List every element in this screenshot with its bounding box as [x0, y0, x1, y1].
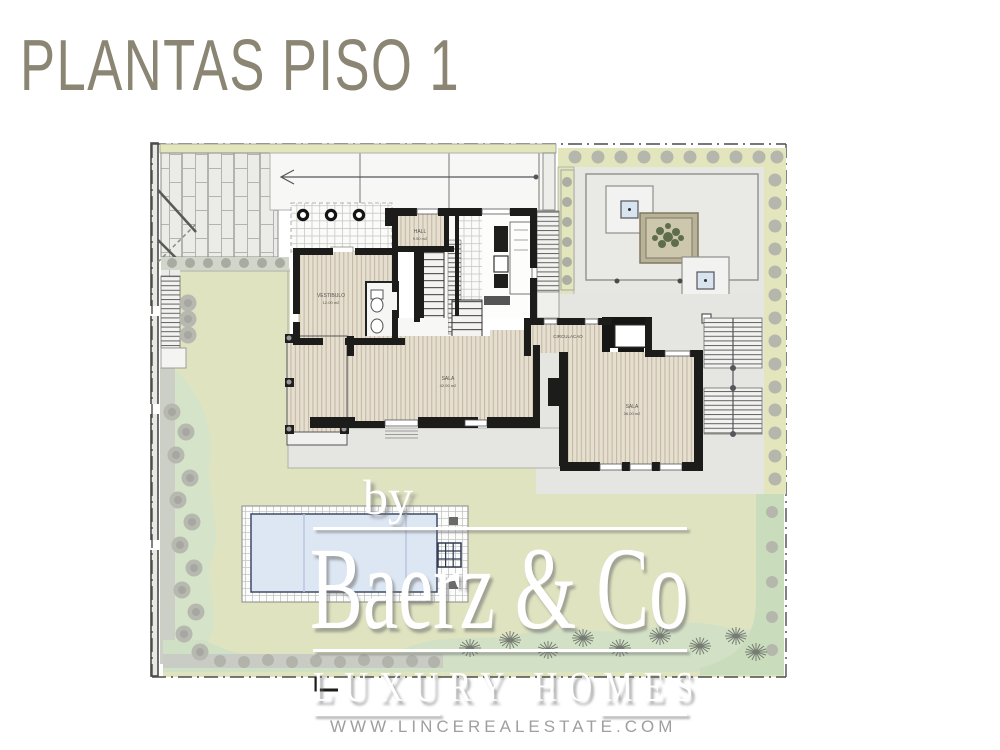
svg-text:9.50 m2: 9.50 m2	[413, 236, 428, 241]
svg-text:SALA: SALA	[626, 404, 639, 410]
svg-text:VESTIBULO: VESTIBULO	[317, 293, 345, 299]
svg-text:12.00 m2: 12.00 m2	[323, 300, 340, 305]
svg-text:CIRCULACAO: CIRCULACAO	[553, 334, 583, 339]
svg-text:SALA: SALA	[442, 376, 455, 382]
svg-text:42.00 m2: 42.00 m2	[440, 383, 457, 388]
svg-text:HALL: HALL	[414, 229, 427, 235]
svg-text:36.00 m2: 36.00 m2	[624, 411, 641, 416]
